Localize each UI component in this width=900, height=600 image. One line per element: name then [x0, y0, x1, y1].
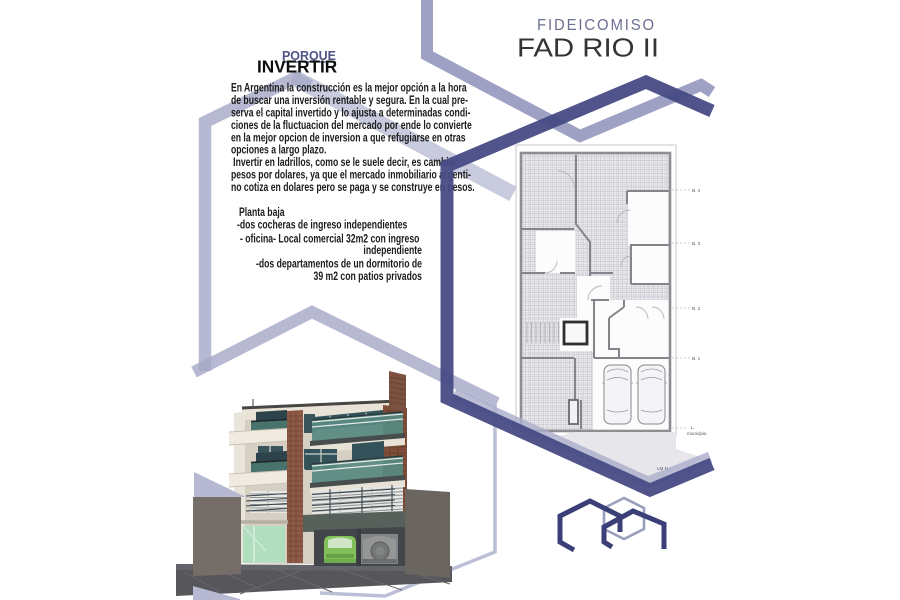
svg-text:Invertir en ladrillos, como se: Invertir en ladrillos, como se le suele … — [233, 157, 457, 169]
svg-text:independiente: independiente — [363, 245, 422, 257]
svg-text:en la mejor opcion de inversio: en la mejor opcion de inversion a que re… — [231, 132, 466, 144]
svg-text:L.: L. — [691, 425, 695, 430]
svg-text:opciones a largo plazo.: opciones a largo plazo. — [231, 145, 327, 157]
svg-text:no cotiza en dolares pero se p: no cotiza en dolares pero se paga y se c… — [231, 182, 475, 194]
svg-text:En Argentina la construcción e: En Argentina la construcción es la mejor… — [231, 82, 467, 94]
svg-text:FIDEICOMISO: FIDEICOMISO — [537, 17, 656, 34]
svg-text:serva el capital invertido y l: serva el capital invertido y lo ajusta a… — [231, 107, 470, 119]
svg-text:ciones de la fluctuacion del m: ciones de la fluctuacion del mercado por… — [231, 120, 472, 132]
svg-text:-dos cocheras de ingreso indep: -dos cocheras de ingreso independientes — [237, 219, 408, 231]
svg-text:B. 4: B. 4 — [692, 188, 701, 193]
svg-text:Planta baja: Planta baja — [239, 207, 285, 219]
svg-text:B. 2: B. 2 — [692, 306, 701, 311]
svg-text:39 m2 con patios privados: 39 m2 con patios privados — [314, 271, 423, 283]
svg-text:-dos departamentos de un dormi: -dos departamentos de un dormitorio de — [256, 258, 422, 270]
svg-text:INVERTIR: INVERTIR — [257, 57, 338, 77]
svg-text:B. 3: B. 3 — [692, 241, 701, 246]
svg-text:de buscar una inversión rentab: de buscar una inversión rentable y segur… — [231, 95, 468, 107]
svg-text:pesos por dolares, ya que el m: pesos por dolares, ya que el mercado inm… — [231, 169, 471, 181]
svg-text:B. 1: B. 1 — [692, 356, 701, 361]
svg-text:municipio: municipio — [687, 431, 707, 436]
svg-text:FAD RIO II: FAD RIO II — [517, 33, 659, 63]
